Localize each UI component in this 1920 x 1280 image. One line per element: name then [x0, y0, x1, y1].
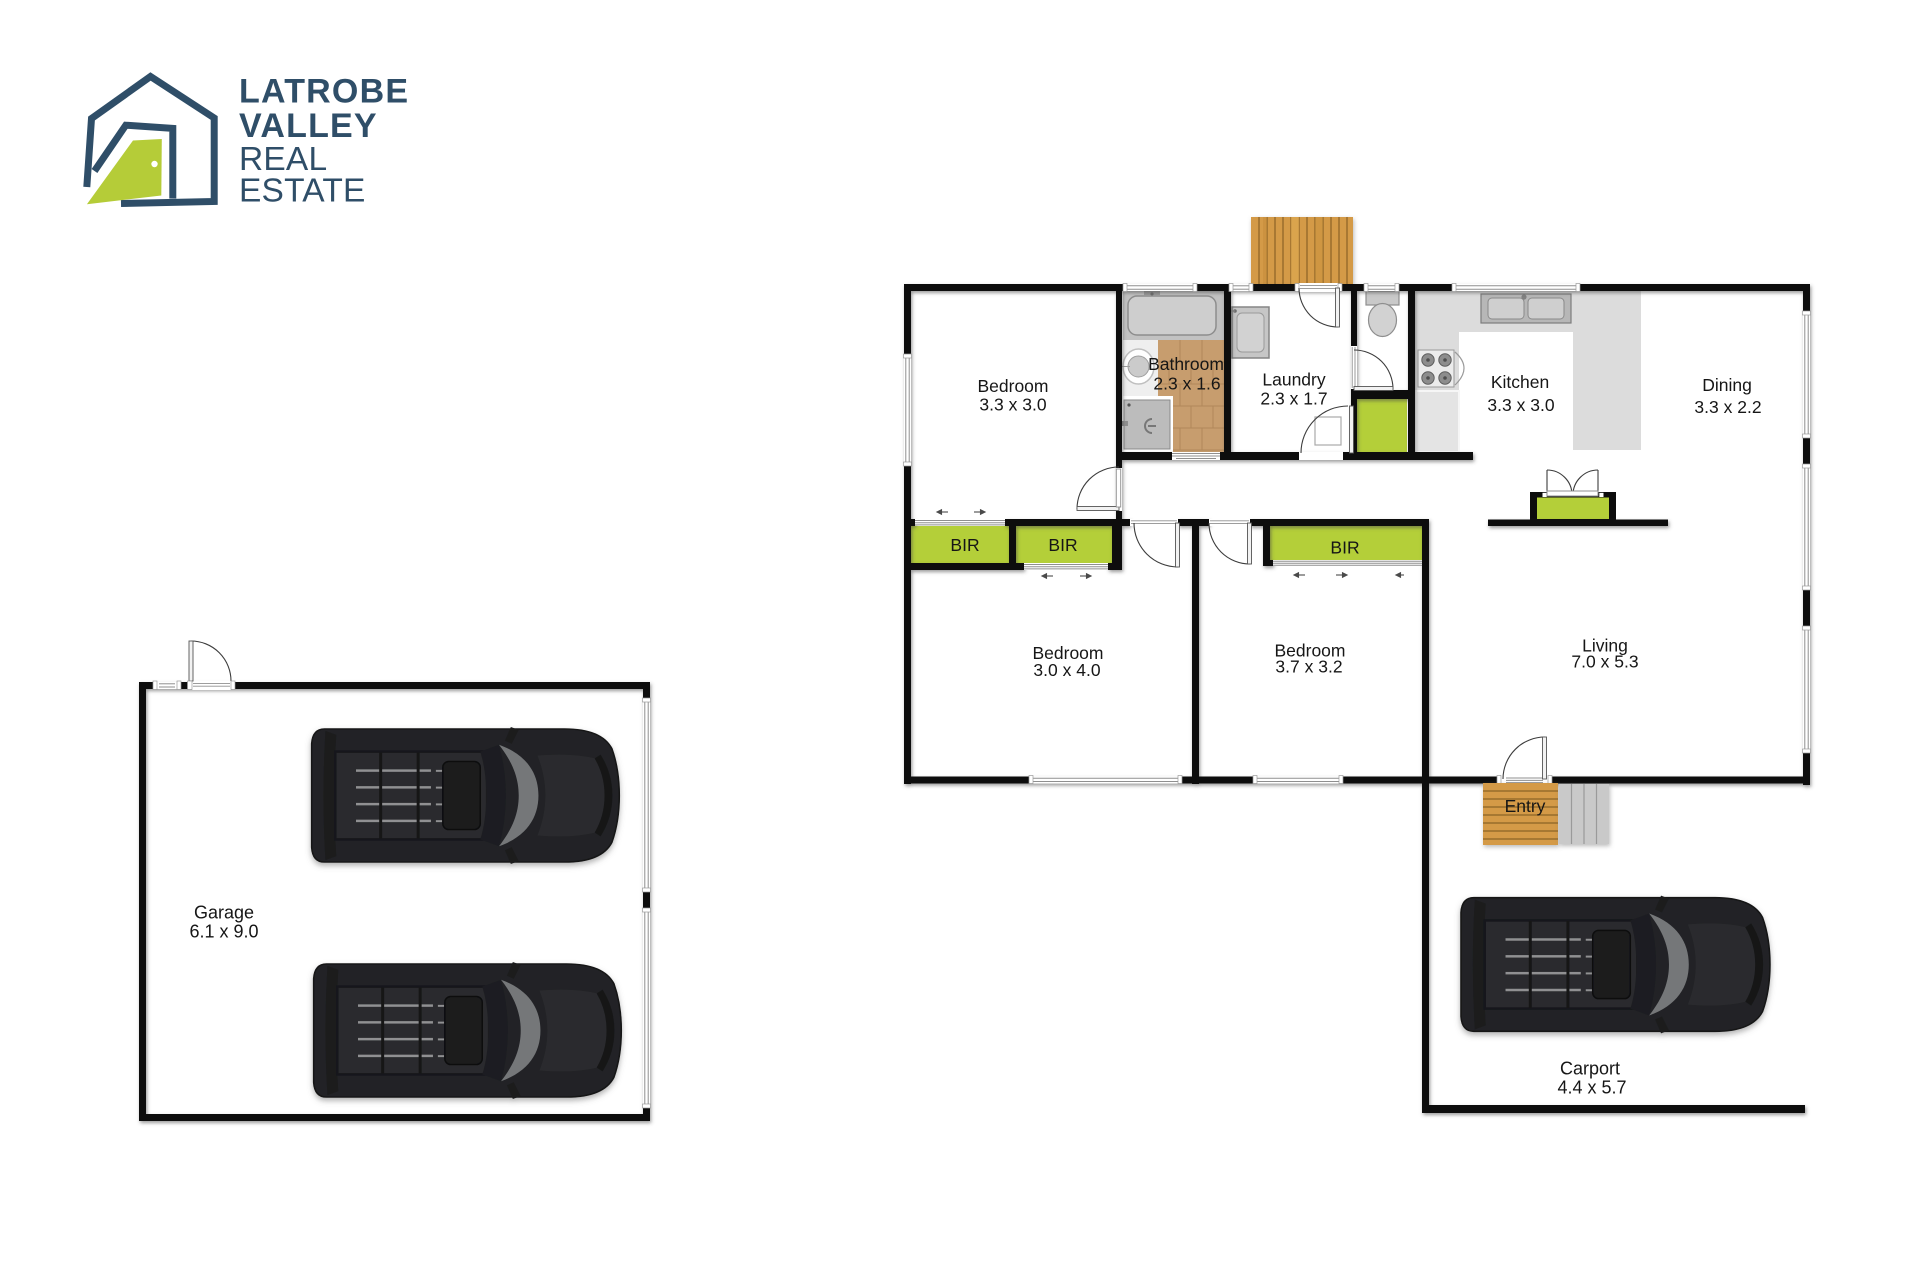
- svg-text:Entry: Entry: [1505, 796, 1546, 816]
- svg-text:4.4 x 5.7: 4.4 x 5.7: [1557, 1078, 1626, 1098]
- svg-text:Bedroom: Bedroom: [977, 376, 1048, 396]
- svg-text:3.7 x 3.2: 3.7 x 3.2: [1275, 657, 1342, 677]
- svg-text:3.0 x 4.0: 3.0 x 4.0: [1033, 660, 1100, 680]
- svg-text:Kitchen: Kitchen: [1491, 372, 1549, 392]
- svg-text:BIR: BIR: [1330, 538, 1359, 558]
- svg-text:2.3 x 1.7: 2.3 x 1.7: [1260, 389, 1327, 409]
- svg-text:VALLEY: VALLEY: [239, 107, 378, 145]
- svg-text:2.3 x 1.6: 2.3 x 1.6: [1153, 374, 1220, 394]
- svg-text:Laundry: Laundry: [1262, 370, 1325, 390]
- svg-text:Bathroom: Bathroom: [1148, 354, 1224, 374]
- svg-text:3.3 x 2.2: 3.3 x 2.2: [1694, 397, 1761, 417]
- svg-text:6.1 x 9.0: 6.1 x 9.0: [189, 922, 258, 942]
- svg-text:LATROBE: LATROBE: [239, 73, 409, 111]
- svg-text:3.3 x 3.0: 3.3 x 3.0: [979, 395, 1046, 415]
- svg-text:Garage: Garage: [194, 903, 254, 923]
- svg-text:Carport: Carport: [1560, 1059, 1620, 1079]
- svg-text:Dining: Dining: [1702, 375, 1752, 395]
- svg-text:BIR: BIR: [950, 535, 979, 555]
- svg-text:BIR: BIR: [1048, 535, 1077, 555]
- svg-text:7.0 x 5.3: 7.0 x 5.3: [1571, 652, 1638, 672]
- svg-text:3.3 x 3.0: 3.3 x 3.0: [1487, 395, 1554, 415]
- svg-text:ESTATE: ESTATE: [239, 173, 366, 210]
